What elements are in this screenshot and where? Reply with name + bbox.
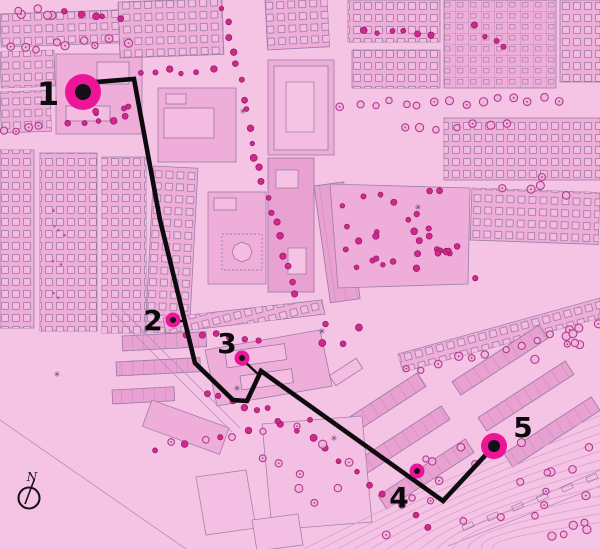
stop-5-dot-inner <box>488 440 500 452</box>
svg-text:✳: ✳ <box>319 327 326 336</box>
stop-5-label: 5 <box>513 411 532 444</box>
svg-text:✳: ✳ <box>54 370 61 379</box>
park-area <box>330 184 470 288</box>
stop-4-label: 4 <box>389 481 408 514</box>
stop-1-label: 1 <box>37 75 59 113</box>
compass-north-label: N <box>26 470 38 484</box>
stop-2-dot-inner <box>170 317 176 323</box>
svg-text:✳: ✳ <box>331 434 338 443</box>
svg-text:✳: ✳ <box>234 384 241 393</box>
stop-1-dot-inner <box>75 84 91 100</box>
stop-3-label: 3 <box>217 327 236 360</box>
stop-4-dot-inner <box>414 468 420 474</box>
svg-text:✳: ✳ <box>240 107 247 116</box>
svg-text:✳: ✳ <box>415 203 422 212</box>
stop-2-label: 2 <box>143 304 162 337</box>
map-canvas: ✳✳✳✳✳✳ 1 2 3 4 5 N <box>0 0 600 549</box>
stop-3-dot-inner <box>239 355 245 361</box>
